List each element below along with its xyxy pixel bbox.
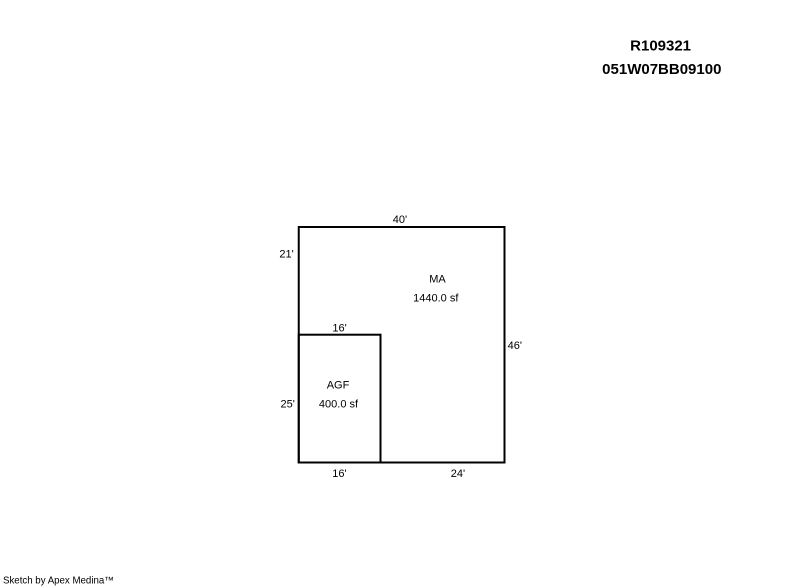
svg-text:1440.0 sf: 1440.0 sf [413,293,459,305]
svg-text:Sketch by Apex Medina™: Sketch by Apex Medina™ [3,576,114,587]
svg-text:46': 46' [508,340,522,352]
svg-text:R109321: R109321 [630,38,691,55]
svg-text:21': 21' [279,248,293,260]
svg-text:16': 16' [332,468,346,480]
svg-text:AGF: AGF [327,380,350,392]
svg-text:25': 25' [281,399,295,411]
svg-text:051W07BB09100: 051W07BB09100 [602,61,721,78]
svg-text:40': 40' [393,214,407,226]
svg-text:16': 16' [332,322,346,334]
svg-text:MA: MA [429,273,446,285]
svg-text:400.0 sf: 400.0 sf [319,399,359,411]
svg-text:24': 24' [451,468,465,480]
